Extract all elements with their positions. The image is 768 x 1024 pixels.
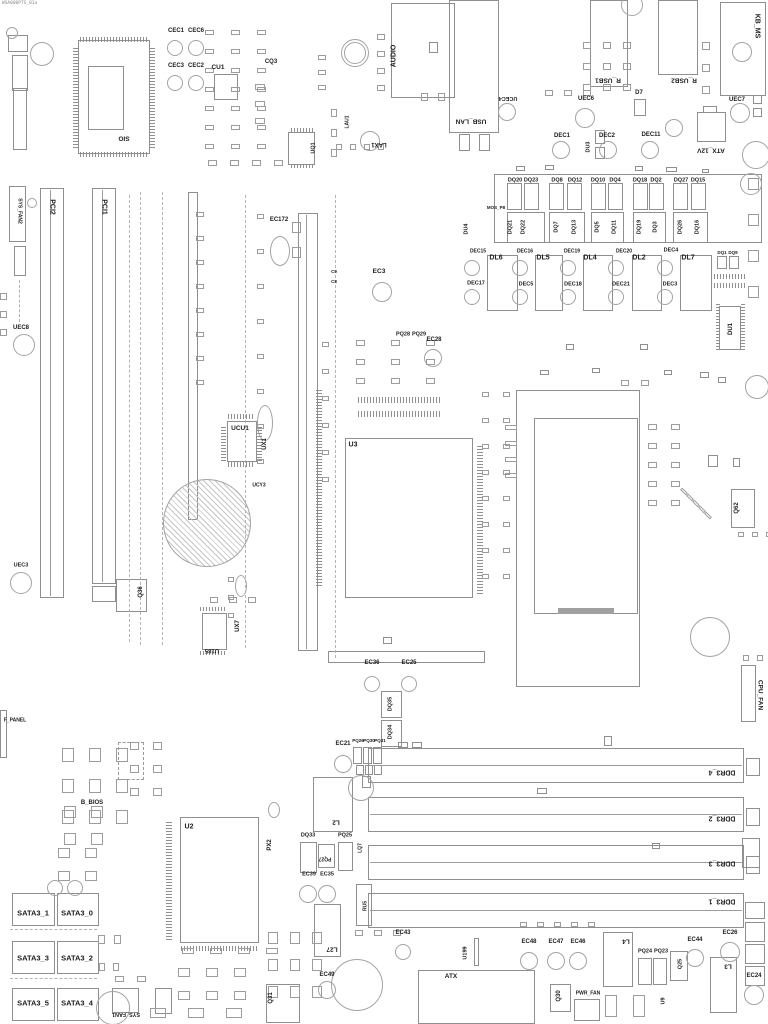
label-pci2: PCI2 — [49, 199, 56, 215]
smd-pad — [205, 106, 214, 111]
pin-array — [291, 164, 314, 168]
label-u2: U2 — [185, 824, 194, 831]
label-cec1: CEC1 — [168, 28, 184, 34]
label-dq18: DQ18 — [633, 178, 647, 184]
component-outline — [391, 3, 455, 98]
component-outline — [733, 458, 740, 467]
smd-pad — [623, 42, 631, 49]
component-outline — [567, 183, 582, 210]
component-outline — [673, 183, 688, 210]
smd-pad — [482, 574, 489, 579]
smd-pad — [257, 49, 266, 54]
smd-pad — [503, 574, 510, 579]
label-dq5: DQ5 — [595, 221, 601, 232]
component-outline — [658, 0, 698, 75]
label-sata3-2: SATA3_2 — [61, 954, 93, 962]
pin-array — [358, 411, 442, 417]
label-q62: Q62 — [734, 502, 740, 513]
label-dq20: DQ20 — [508, 178, 522, 184]
smd-pad — [257, 125, 266, 130]
component-outline — [549, 183, 564, 210]
smd-pad — [196, 260, 204, 265]
label-ec21: EC21 — [335, 741, 350, 747]
smd-pad — [188, 1008, 204, 1018]
smd-pad — [588, 922, 595, 927]
smd-pad — [426, 378, 435, 384]
smd-pad — [153, 742, 162, 750]
label-dec15: DEC15 — [470, 250, 486, 255]
label-sys-fan2: SYS_FAN2 — [17, 198, 22, 224]
label-dec3: DEC3 — [663, 282, 678, 288]
label-uec6: UEC6 — [578, 96, 594, 102]
smd-pad — [257, 354, 264, 359]
cap-or-hole-circle — [67, 880, 83, 896]
dashed-trace-vertical — [19, 280, 20, 322]
smd-pad — [312, 986, 322, 998]
smd-pad — [268, 932, 278, 944]
smd-pad — [503, 392, 510, 397]
component-outline — [703, 106, 717, 113]
pin-array — [228, 414, 255, 419]
label-pq31: PQ31 — [374, 739, 386, 744]
slot-centerline — [370, 862, 742, 863]
label-lax1: LAX1 — [371, 141, 386, 147]
smd-pad — [196, 236, 204, 241]
label-pwr-fan: PWR_FAN — [576, 992, 600, 997]
label-audio: AUDIO — [391, 45, 398, 68]
label-cpu-fan: CPU_FAN — [756, 680, 763, 710]
pin-array — [741, 304, 745, 350]
cap-or-hole-circle — [395, 944, 411, 960]
cap-or-hole-circle — [730, 103, 750, 123]
label-b-bios: B_BIOS — [81, 800, 103, 806]
smd-pad — [505, 457, 517, 462]
cap-or-hole-circle — [742, 141, 768, 169]
component-outline — [524, 183, 539, 210]
smd-pad — [331, 129, 337, 137]
label-dec21: DEC21 — [612, 282, 630, 288]
label-dec2: DEC2 — [599, 133, 615, 139]
smd-pad — [0, 311, 7, 318]
component-outline — [664, 370, 672, 375]
smd-pad — [257, 30, 266, 35]
component-outline — [429, 42, 438, 53]
component-outline — [298, 213, 318, 651]
smd-pad — [257, 424, 264, 429]
smd-pad — [255, 118, 265, 124]
smd-pad — [257, 319, 264, 324]
label-dq1: DQ1 — [717, 251, 726, 256]
smd-pad — [648, 481, 657, 487]
cap-or-hole-circle — [569, 952, 587, 970]
smd-pad — [482, 418, 489, 423]
label-u199: U199 — [463, 946, 469, 959]
component-outline — [459, 134, 470, 151]
label-pq24: PQ24 — [638, 949, 652, 955]
dashed-trace-vertical — [335, 195, 336, 658]
component-outline — [746, 758, 760, 776]
component-outline — [591, 183, 606, 210]
label-dq3: DQ3 — [653, 221, 659, 232]
component-outline — [702, 169, 709, 173]
smd-pad — [238, 948, 250, 954]
smd-pad — [752, 532, 758, 537]
component-outline — [592, 368, 600, 373]
component-outline — [180, 817, 259, 943]
label-pci1: PCI1 — [101, 199, 108, 215]
component-outline — [753, 95, 762, 104]
board-revision-text: WSA000P7S_01a — [2, 1, 37, 6]
cap-or-hole-circle — [690, 617, 730, 657]
label-ec43: EC43 — [395, 930, 410, 936]
label-dl5: DL5 — [536, 255, 549, 262]
cap-or-hole-circle — [47, 880, 63, 896]
smd-pad — [114, 935, 121, 944]
label-dq26: DQ26 — [678, 220, 684, 234]
smd-pad — [482, 444, 489, 449]
label-sata3-0: SATA3_0 — [61, 909, 93, 917]
pin-array — [80, 152, 148, 157]
component-outline — [640, 344, 648, 350]
label-lau1: LAU1 — [346, 115, 351, 128]
smd-pad — [150, 1008, 166, 1018]
label-uec7: UEC7 — [729, 97, 745, 103]
dashed-trace-vertical — [129, 195, 130, 642]
label-q31: Q31 — [268, 992, 274, 1003]
cap-or-hole-circle — [745, 375, 768, 399]
smd-pad — [738, 532, 744, 537]
label-ucy3: UCY3 — [252, 484, 265, 489]
smd-pad — [231, 125, 240, 130]
component-outline — [12, 55, 28, 91]
component-outline — [412, 742, 422, 748]
pcb-silkscreen-board: WSA000P7S_01a CEC1CEC6CEC3CEC2CU1CQ3SIOU… — [0, 0, 768, 1024]
label-dec5: DEC5 — [519, 282, 534, 288]
component-outline — [363, 747, 372, 764]
label-dq2: DQ2 — [650, 178, 661, 184]
smd-pad — [374, 930, 382, 936]
smd-pad — [228, 595, 234, 600]
component-outline — [634, 99, 646, 116]
label-ucec4: UCEC4 — [499, 94, 518, 100]
cap-or-hole-circle — [6, 27, 18, 39]
cap-or-hole-circle — [575, 108, 595, 128]
label-uec3: UEC3 — [14, 563, 29, 569]
smd-pad — [234, 968, 246, 977]
cap-or-hole-circle — [270, 236, 290, 266]
component-outline — [14, 246, 26, 276]
slot-centerline — [306, 215, 307, 649]
smd-pad — [292, 222, 301, 233]
smd-pad — [91, 833, 103, 845]
pin-array — [358, 397, 442, 403]
label-r-usb1: R_USB1 — [595, 76, 621, 83]
label-ec3: EC3 — [373, 269, 386, 276]
smd-pad — [391, 340, 400, 346]
label-pq29: PQ29 — [412, 332, 426, 338]
cap-or-hole-circle — [512, 289, 528, 305]
label-ec25: EC25 — [401, 660, 416, 666]
smd-pad — [520, 922, 527, 927]
smd-pad — [290, 932, 300, 944]
smd-pad — [571, 922, 578, 927]
component-outline — [746, 856, 760, 874]
smd-pad — [318, 85, 326, 90]
label-c9: C9 — [331, 270, 337, 275]
smd-pad — [252, 160, 261, 166]
label-usb-lan: USB_LAN — [456, 117, 487, 124]
smd-pad — [377, 34, 385, 40]
smd-pad — [648, 462, 657, 468]
smd-pad — [153, 765, 162, 773]
component-outline — [604, 736, 612, 746]
label-c8: C8 — [331, 280, 337, 285]
label-ec35: EC35 — [320, 872, 334, 878]
component-outline — [753, 108, 762, 117]
smd-pad — [621, 380, 629, 386]
smd-pad — [356, 340, 365, 346]
label-du1: DU1 — [728, 323, 734, 335]
smd-pad — [671, 462, 680, 468]
cap-or-hole-circle — [299, 885, 317, 903]
label-dl2: DL2 — [632, 255, 645, 262]
label-l3: L3 — [724, 962, 732, 969]
pin-array — [73, 46, 78, 148]
component-outline — [353, 747, 362, 764]
label-atx: ATX — [445, 974, 458, 981]
smd-pad — [322, 423, 329, 428]
smd-pad — [137, 976, 146, 982]
smd-pad — [322, 477, 329, 482]
smd-pad — [702, 86, 710, 94]
label-pq28: PQ28 — [396, 332, 410, 338]
label-u185: U185 — [205, 647, 219, 653]
smd-pad — [196, 356, 204, 361]
label-cec2: CEC2 — [188, 63, 204, 69]
smd-pad — [210, 948, 222, 954]
label-ec47: EC47 — [548, 939, 563, 945]
component-outline — [88, 66, 124, 130]
smd-pad — [426, 359, 435, 365]
component-outline — [729, 256, 739, 269]
smd-pad — [99, 963, 105, 971]
cap-or-hole-circle — [318, 885, 336, 903]
smd-pad — [318, 70, 326, 75]
label-ec28: EC28 — [426, 337, 441, 343]
component-outline — [516, 166, 525, 171]
smd-pad — [312, 959, 322, 971]
label-ec24: EC24 — [746, 973, 761, 979]
component-outline — [717, 256, 727, 269]
smd-pad — [322, 342, 329, 347]
label-dec19: DEC19 — [564, 250, 580, 255]
component-outline — [365, 765, 373, 775]
component-outline — [700, 372, 709, 378]
smd-pad — [603, 42, 611, 49]
smd-pad — [0, 293, 7, 300]
smd-pad — [228, 577, 234, 582]
cap-or-hole-circle — [621, 0, 643, 16]
dashed-trace-horizontal — [10, 978, 97, 979]
smd-pad — [702, 64, 710, 72]
component-outline — [652, 843, 660, 849]
smd-pad — [583, 42, 591, 49]
label-l27: L27 — [326, 945, 337, 952]
smd-pad — [633, 995, 645, 1017]
smd-pad — [564, 90, 572, 96]
label-dq7: DQ7 — [554, 221, 560, 232]
component-outline — [418, 970, 535, 1024]
smd-pad — [377, 51, 385, 57]
cap-or-hole-circle — [13, 334, 35, 356]
smd-pad — [205, 30, 214, 35]
smd-pad — [554, 922, 561, 927]
smd-pad — [98, 935, 105, 944]
label-dec18: DEC18 — [564, 282, 582, 288]
smd-pad — [505, 425, 517, 430]
slot-centerline — [50, 190, 51, 596]
smd-pad — [85, 871, 97, 881]
smd-pad — [605, 995, 617, 1017]
smd-pad — [196, 284, 204, 289]
label-dq35: DQ35 — [388, 697, 394, 711]
smd-pad — [482, 392, 489, 397]
label-dq19: DQ19 — [637, 220, 643, 234]
cap-or-hole-circle — [686, 949, 704, 967]
component-outline — [746, 808, 760, 826]
smd-pad — [58, 871, 70, 881]
component-outline — [540, 370, 549, 375]
slot-centerline — [102, 190, 103, 582]
smd-pad — [482, 496, 489, 501]
pin-array — [80, 37, 148, 42]
label-dq16: DQ16 — [695, 220, 701, 234]
label-ec44: EC44 — [687, 937, 702, 943]
label-uq1: UQ1 — [311, 142, 317, 153]
smd-pad — [116, 779, 128, 793]
smd-pad — [257, 144, 266, 149]
dashed-trace-vertical — [162, 192, 163, 645]
smd-pad — [312, 932, 322, 944]
label-atx-12v: ATX_12V — [697, 146, 725, 153]
smd-pad — [64, 806, 76, 818]
smd-pad — [748, 214, 759, 226]
smd-pad — [62, 779, 74, 793]
smd-pad — [603, 63, 611, 70]
component-outline — [718, 377, 726, 383]
label-dq22: DQ22 — [521, 220, 527, 234]
component-outline — [479, 134, 490, 151]
cap-or-hole-circle — [334, 755, 352, 773]
smd-pad — [318, 55, 326, 60]
smd-pad — [206, 991, 218, 1000]
label-dq12: DQ12 — [568, 178, 582, 184]
smd-pad — [623, 63, 631, 70]
component-outline — [633, 183, 648, 210]
label-dq4: DQ4 — [609, 178, 620, 184]
smd-pad — [196, 308, 204, 313]
smd-pad — [226, 1008, 242, 1018]
smd-pad — [364, 144, 370, 150]
dashed-trace-vertical — [245, 195, 246, 648]
smd-pad — [130, 765, 139, 773]
cap-or-hole-circle — [608, 260, 624, 276]
smd-pad — [641, 380, 649, 386]
smd-pad — [257, 284, 264, 289]
component-outline — [537, 788, 547, 794]
smd-pad — [623, 84, 631, 91]
smd-pad — [257, 214, 264, 219]
smd-pad — [671, 443, 680, 449]
smd-pad — [230, 160, 239, 166]
label-ec46: EC46 — [570, 939, 585, 945]
label-ddr3-3: DDR3_3 — [709, 860, 736, 867]
cap-or-hole-circle — [30, 42, 54, 66]
smd-pad — [748, 286, 759, 298]
smd-pad — [322, 396, 329, 401]
label-dq9: DQ9 — [728, 251, 737, 256]
label-dq8: DQ8 — [551, 178, 562, 184]
cap-or-hole-circle — [599, 141, 617, 159]
component-outline — [745, 944, 765, 964]
label-dl6: DL6 — [489, 255, 502, 262]
cap-or-hole-circle — [608, 289, 624, 305]
smd-pad — [255, 101, 265, 107]
smd-pad — [113, 963, 119, 971]
component-outline — [507, 183, 522, 210]
cap-or-hole-circle — [167, 75, 183, 91]
smd-pad — [116, 748, 128, 762]
smd-pad — [0, 329, 7, 336]
label-l2: L2 — [332, 818, 340, 825]
label-du4: DU4 — [464, 223, 470, 234]
cap-or-hole-circle — [364, 676, 380, 692]
hatched-hole-circle — [163, 479, 251, 567]
smd-pad — [231, 30, 240, 35]
label-du3: DU3 — [586, 141, 592, 152]
component-outline — [653, 958, 667, 985]
smd-pad — [257, 249, 264, 254]
smd-pad — [89, 779, 101, 793]
label-l4: L4 — [622, 937, 630, 944]
smd-pad — [268, 959, 278, 971]
pin-array — [166, 820, 172, 940]
cap-or-hole-circle — [348, 775, 374, 801]
smd-pad — [255, 84, 265, 90]
label-sata3-4: SATA3_4 — [61, 999, 93, 1007]
cap-or-hole-circle — [657, 260, 673, 276]
smd-pad — [130, 788, 139, 796]
cap-or-hole-circle — [188, 75, 204, 91]
label-cq3: CQ3 — [265, 59, 277, 65]
component-outline — [666, 167, 677, 172]
smd-pad — [648, 500, 657, 506]
smd-pad — [231, 87, 240, 92]
smd-pad — [257, 459, 264, 464]
smd-pad — [274, 160, 283, 166]
smd-pad — [757, 655, 763, 661]
label-mos-p8: MOS_P8 — [487, 206, 505, 211]
smd-pad — [391, 378, 400, 384]
slot-centerline — [370, 765, 742, 766]
smd-pad — [671, 481, 680, 487]
label-dq15: DQ15 — [691, 178, 705, 184]
smd-pad — [482, 548, 489, 553]
label-ec49: EC49 — [319, 972, 334, 978]
cap-or-hole-circle — [560, 289, 576, 305]
smd-pad — [482, 522, 489, 527]
smd-pad — [89, 748, 101, 762]
